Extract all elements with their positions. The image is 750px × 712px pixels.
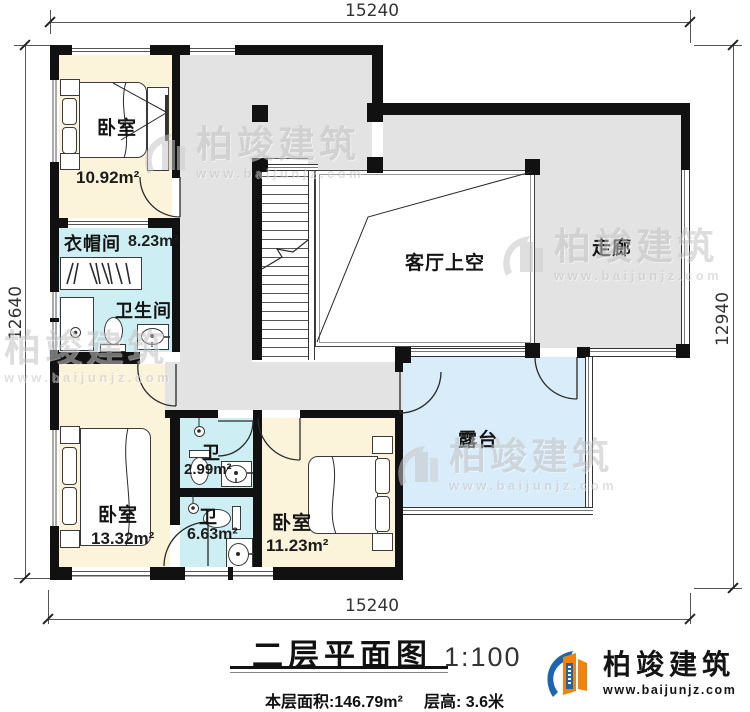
room-area-wc1: 2.99m²: [184, 461, 232, 478]
room-area-cloakroom: 8.23m²: [128, 233, 179, 251]
pillow: [62, 127, 77, 154]
wall: [395, 412, 403, 567]
window: [233, 567, 273, 580]
shower: [60, 297, 94, 351]
dim-bottom: 15240: [345, 596, 399, 616]
railing: [590, 348, 676, 357]
cased-opening: [68, 218, 148, 228]
dim-right: 12940: [713, 287, 731, 351]
window: [185, 567, 228, 580]
wardrobe-door-bar: [165, 95, 168, 141]
pillow: [62, 447, 77, 485]
cloakroom-wardrobe: [60, 257, 142, 290]
wall: [170, 410, 180, 525]
room-label-corridor: 走廊: [592, 233, 632, 260]
dim-top: 15240: [345, 1, 399, 21]
floor-height-text: 层高: 3.6米: [424, 688, 504, 712]
wall: [253, 410, 262, 568]
window: [72, 45, 150, 55]
floor-plan-canvas: 卧室 10.92m² 衣帽间 8.23m² 卫生间 客厅上空 走廊 卧室 13.…: [0, 0, 750, 712]
dim-ext: [690, 10, 691, 43]
column: [367, 157, 383, 173]
nightstand: [372, 533, 393, 551]
terrace-railing-right: [585, 357, 593, 515]
brand-logo: 柏竣建筑 www.baijunjz.com: [543, 645, 736, 703]
column: [525, 159, 540, 175]
terrace-railing-bottom: [403, 507, 593, 515]
room-label-cloakroom: 衣帽间: [64, 230, 121, 256]
wall: [300, 410, 403, 418]
pillow: [62, 98, 77, 125]
room-area-bedroom2: 13.32m²: [91, 529, 154, 549]
dim-ext: [694, 588, 742, 589]
dim-line: [48, 619, 690, 620]
brand-name: 柏竣建筑: [603, 651, 736, 679]
column: [395, 347, 411, 363]
window: [50, 80, 59, 162]
sink: [141, 328, 164, 345]
room-label-living-void: 客厅上空: [405, 248, 485, 275]
window: [72, 567, 150, 580]
window: [190, 45, 235, 55]
toilet-tank: [100, 344, 126, 352]
ceiling-lamp: [194, 426, 205, 437]
dim-line: [50, 22, 690, 23]
title-underline: [230, 666, 448, 669]
room-label-bathroom: 卫生间: [115, 297, 172, 323]
room-area-wc2: 6.63m²: [187, 526, 238, 544]
dim-left: 12640: [6, 281, 24, 345]
pillow: [62, 487, 77, 525]
corridor-window-railing: [681, 170, 690, 344]
hall-top: [180, 55, 372, 170]
room-label-terrace: 露台: [458, 425, 498, 452]
staircase: [262, 158, 308, 361]
nightstand: [372, 436, 393, 454]
room-label-bedroom1: 卧室: [97, 113, 137, 140]
wall: [172, 52, 180, 178]
room-area-bedroom3: 11.23m²: [266, 536, 328, 556]
brand-logo-icon: [543, 645, 595, 703]
dim-line: [25, 45, 26, 578]
column: [525, 343, 540, 358]
bed: [308, 456, 378, 534]
column: [676, 344, 690, 358]
window: [50, 292, 59, 318]
brand-website: www.baijunjz.com: [603, 683, 736, 697]
wall: [57, 352, 140, 364]
nightstand: [60, 79, 80, 96]
sink: [228, 543, 249, 566]
nightstand: [60, 530, 80, 548]
dim-ext: [14, 578, 50, 579]
wall: [252, 158, 262, 360]
column: [252, 105, 268, 122]
column: [367, 103, 383, 122]
room-area-bedroom1: 10.92m²: [76, 168, 139, 188]
wall: [180, 488, 253, 497]
dim-ext: [14, 45, 50, 46]
wall: [383, 103, 690, 115]
room-label-bedroom3: 卧室: [272, 508, 312, 535]
nightstand: [60, 426, 80, 444]
column: [252, 158, 268, 172]
window: [50, 322, 59, 350]
railing: [262, 164, 318, 171]
pillow: [375, 496, 390, 532]
title-underline-thin: [230, 672, 448, 673]
ceiling-lamp: [188, 503, 199, 514]
floor-area-text: 本层面积:146.79m²: [265, 688, 403, 712]
hall-bottom-strip: [165, 362, 403, 410]
window: [50, 430, 59, 526]
room-label-bedroom2: 卧室: [98, 500, 138, 527]
dim-line: [733, 45, 734, 588]
stair-railing: [308, 166, 315, 360]
wall: [681, 103, 690, 170]
railing: [411, 348, 525, 357]
pillow: [375, 458, 390, 494]
dim-ext: [694, 45, 742, 46]
drawing-scale: 1:100: [444, 642, 522, 672]
shower-drain: [70, 327, 81, 338]
